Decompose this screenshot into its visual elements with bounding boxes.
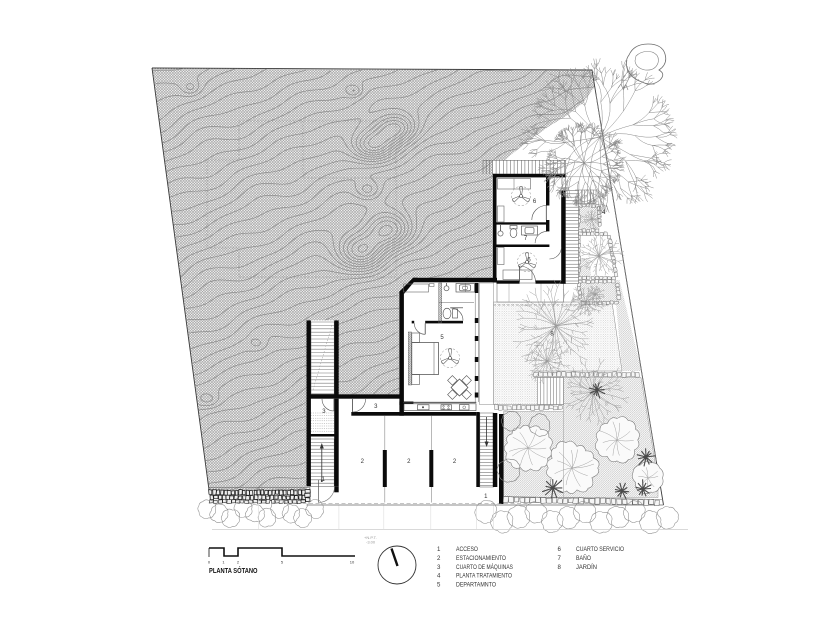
svg-text:-3.00: -3.00 bbox=[366, 540, 376, 545]
svg-text:ESTACIONAMIENTO: ESTACIONAMIENTO bbox=[456, 555, 506, 562]
svg-text:10: 10 bbox=[350, 560, 355, 565]
svg-text:CUARTO SERVICIO: CUARTO SERVICIO bbox=[576, 546, 624, 553]
svg-text:PLANTA TRATAMIENTO: PLANTA TRATAMIENTO bbox=[456, 573, 512, 580]
svg-text:ACCESO: ACCESO bbox=[456, 546, 478, 553]
svg-text:PLANTA SÓTANO: PLANTA SÓTANO bbox=[209, 566, 258, 575]
svg-text:JARDÍN: JARDÍN bbox=[576, 564, 597, 571]
svg-text:BAÑO: BAÑO bbox=[576, 555, 591, 562]
svg-text:CUARTO DE MÁQUINAS: CUARTO DE MÁQUINAS bbox=[456, 564, 513, 571]
svg-text:DEPARTAMNTO: DEPARTAMNTO bbox=[456, 582, 496, 589]
